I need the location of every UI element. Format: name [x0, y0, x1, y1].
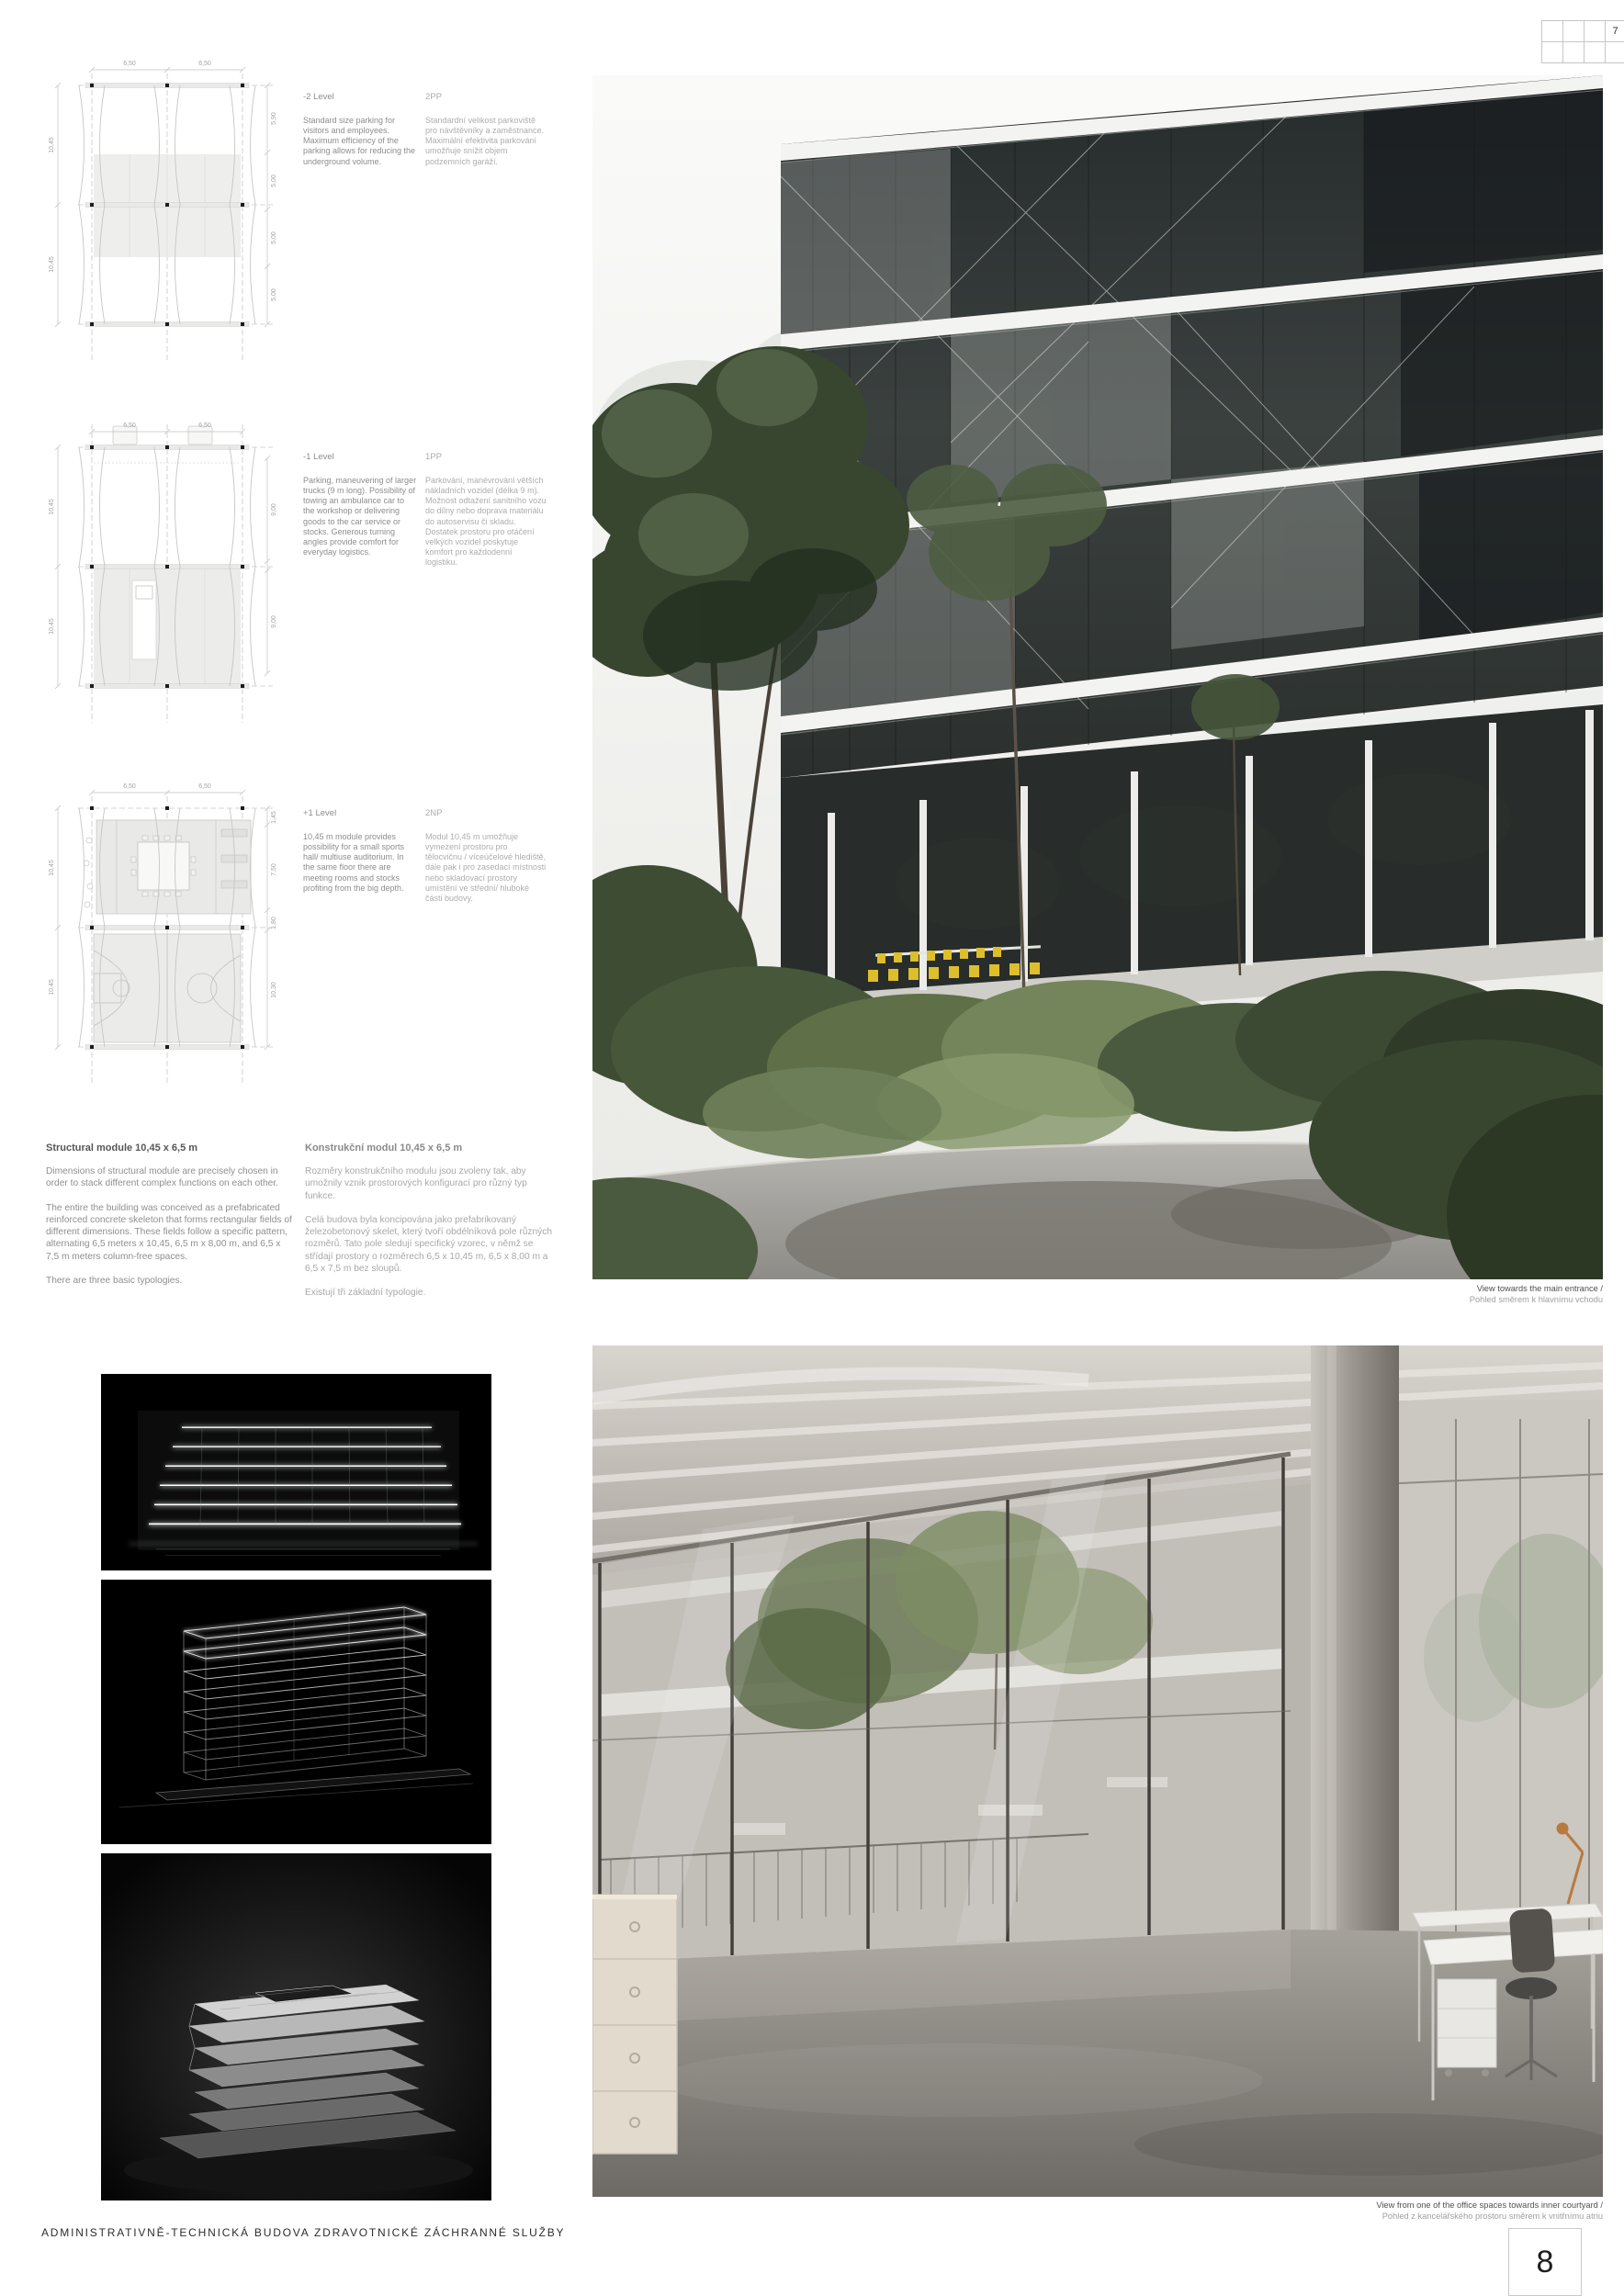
level-heading: 1PP	[425, 452, 547, 462]
level-heading: -2 Level	[303, 92, 417, 102]
svg-text:5,90: 5,90	[271, 112, 277, 125]
level-paragraph: Modul 10,45 m umožňuje vymezení prostoru…	[425, 832, 547, 904]
sheet-index-cell	[1562, 41, 1585, 63]
structural-paragraph: The entire the building was conceived as…	[46, 1202, 296, 1263]
floor-plan-plus1-level: 6,50 6,50 10,45 10,45 1,45 7,50 1,80 10,…	[41, 776, 289, 1093]
level-minus1-text-en: -1 Level Parking, maneuvering of larger …	[303, 452, 417, 557]
level-plus1-text-cz: 2NP Modul 10,45 m umožňuje vymezení pros…	[425, 808, 547, 904]
svg-text:7,50: 7,50	[271, 863, 277, 876]
level-heading: +1 Level	[303, 808, 417, 818]
svg-text:10,45: 10,45	[49, 499, 55, 515]
sheet-index-grid: 7	[1541, 20, 1624, 62]
structural-paragraph: Rozměry konstrukčního modulu jsou zvolen…	[305, 1165, 555, 1202]
page-number-box: 8	[1508, 2228, 1582, 2296]
night-render-axon-model	[101, 1853, 491, 2200]
svg-text:6,50: 6,50	[198, 783, 211, 790]
svg-text:1,45: 1,45	[271, 811, 277, 824]
level-minus2-text-en: -2 Level Standard size parking for visit…	[303, 92, 417, 167]
model-shadow	[124, 2146, 473, 2194]
exterior-render-photo	[592, 75, 1603, 1279]
exterior-caption: View towards the main entrance / Pohled …	[1470, 1284, 1603, 1306]
night-render-elevation	[101, 1374, 491, 1570]
structural-heading: Konstrukční modul 10,45 x 6,5 m	[305, 1142, 555, 1154]
caption-line-en: View towards the main entrance /	[1470, 1284, 1603, 1295]
caption-line-en: View from one of the office spaces towar…	[1376, 2200, 1603, 2212]
level-paragraph: Parkování, manévrování větších nákladníc…	[425, 476, 547, 568]
svg-text:6,50: 6,50	[123, 422, 136, 429]
level-paragraph: Parking, maneuvering of larger trucks (9…	[303, 476, 417, 557]
level-minus1-text-cz: 1PP Parkování, manévrování větších nákla…	[425, 452, 547, 568]
floor-plan-minus2-level: 6,50 6,50 10,45 10,45 5,90 5,00 5,00 5,0…	[41, 53, 289, 370]
svg-text:9,00: 9,00	[271, 503, 277, 516]
svg-text:10,45: 10,45	[49, 256, 55, 273]
svg-text:10,45: 10,45	[49, 860, 55, 876]
level-heading: 2PP	[425, 92, 547, 102]
sheet-index-cell	[1605, 41, 1624, 63]
caption-line-cz: Pohled směrem k hlavnímu vchodu	[1470, 1295, 1603, 1306]
svg-text:10,30: 10,30	[271, 982, 277, 998]
svg-text:1,80: 1,80	[271, 917, 277, 929]
structural-paragraph: Existují tři základní typologie.	[305, 1287, 555, 1299]
night-render-skeleton	[101, 1580, 491, 1844]
svg-text:6,50: 6,50	[198, 422, 211, 429]
presentation-board: 7	[0, 0, 1624, 2296]
svg-text:5,00: 5,00	[271, 288, 277, 301]
svg-text:5,00: 5,00	[271, 231, 277, 244]
svg-text:6,50: 6,50	[123, 783, 136, 790]
floor-plan-minus1-level: 6,50 6,50 10,45 10,45 9,00 9,00	[41, 415, 289, 732]
structural-module-text-en: Structural module 10,45 x 6,5 m Dimensio…	[46, 1142, 296, 1299]
interior-render-photo	[592, 1345, 1603, 2197]
storage-cabinet	[592, 1895, 677, 2154]
structural-paragraph: Celá budova byla koncipována jako prefab…	[305, 1214, 555, 1275]
level-paragraph: Standardní velikost parkoviště pro návšt…	[425, 116, 547, 167]
interior-caption: View from one of the office spaces towar…	[1376, 2200, 1603, 2223]
sports-hall-court	[94, 934, 241, 1042]
svg-text:6,50: 6,50	[123, 61, 136, 67]
meeting-room	[84, 820, 251, 914]
level-plus1-text-en: +1 Level 10,45 m module provides possibi…	[303, 808, 417, 894]
sheet-index-cell-current: 7	[1605, 20, 1624, 42]
structural-heading: Structural module 10,45 x 6,5 m	[46, 1142, 296, 1154]
svg-text:9,00: 9,00	[271, 615, 277, 628]
sheet-index-cell	[1584, 41, 1606, 63]
level-heading: 2NP	[425, 808, 547, 818]
structural-paragraph: Dimensions of structural module are prec…	[46, 1165, 296, 1190]
sheet-index-cell	[1541, 41, 1563, 63]
sheet-index-cell	[1562, 20, 1585, 42]
structural-paragraph: There are three basic typologies.	[46, 1275, 296, 1287]
svg-text:6,50: 6,50	[198, 61, 211, 67]
svg-text:10,45: 10,45	[49, 618, 55, 635]
shaded-bays	[94, 568, 241, 684]
svg-text:10,45: 10,45	[49, 979, 55, 996]
structural-module-text-cz: Konstrukční modul 10,45 x 6,5 m Rozměry …	[305, 1142, 555, 1311]
sheet-index-cell	[1584, 20, 1606, 42]
caption-line-cz: Pohled z kancelářského prostoru směrem k…	[1376, 2212, 1603, 2223]
board-title: ADMINISTRATIVNĚ-TECHNICKÁ BUDOVA ZDRAVOT…	[41, 2226, 565, 2239]
level-paragraph: 10,45 m module provides possibility for …	[303, 832, 417, 894]
sheet-index-cell	[1541, 20, 1563, 42]
level-minus2-text-cz: 2PP Standardní velikost parkoviště pro n…	[425, 92, 547, 167]
level-paragraph: Standard size parking for visitors and e…	[303, 116, 417, 167]
right-glazing	[1399, 1401, 1603, 1933]
level-heading: -1 Level	[303, 452, 417, 462]
svg-text:10,45: 10,45	[49, 137, 55, 153]
svg-text:5,00: 5,00	[271, 174, 277, 187]
page-number: 8	[1537, 2245, 1554, 2280]
